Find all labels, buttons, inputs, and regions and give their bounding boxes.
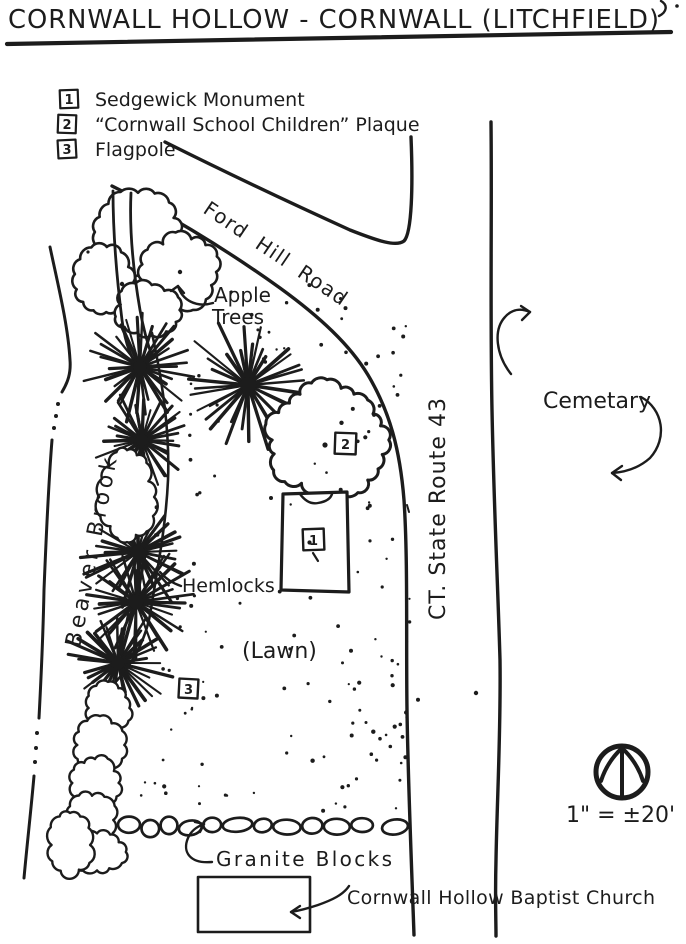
page-title: CORNWALL HOLLOW - CORNWALL (LITCHFIELD) (8, 5, 660, 35)
page-corner-mark (659, 1, 679, 16)
label-granite-blocks: Granite Blocks (216, 847, 392, 871)
label-church: Cornwall Hollow Baptist Church (347, 887, 655, 909)
beaver-brook-stream (24, 247, 70, 878)
label-apple-line1: Apple (214, 283, 271, 307)
label-scale: 1" = ±20' (566, 803, 675, 828)
marker-plaque: 2 (335, 433, 357, 455)
label-route-43: CT. State Route 43 (426, 398, 451, 620)
site-plan-page: CORNWALL HOLLOW - CORNWALL (LITCHFIELD) … (0, 0, 686, 944)
legend-key-1: 1 (64, 93, 73, 108)
label-cemetary: Cemetary (543, 389, 651, 414)
apple-trees-canopy (72, 189, 220, 338)
plaque-tree-canopy (265, 378, 391, 503)
brook-dashes (33, 402, 60, 764)
label-lawn: (Lawn) (242, 639, 317, 664)
legend-key-3: 3 (62, 143, 71, 158)
marker-monument: 1 (303, 529, 325, 551)
marker-flagpole: 3 (178, 679, 198, 699)
marker-plaque-num: 2 (341, 438, 350, 453)
cemetary-arrow-up (498, 306, 530, 374)
church-building-outline (198, 877, 310, 932)
legend: 1 Sedgewick Monument 2 “Cornwall School … (58, 89, 420, 161)
stray-tick-road (407, 505, 409, 512)
label-hemlocks: Hemlocks (182, 575, 275, 597)
plaque-tree-trunk-dot (322, 442, 327, 447)
legend-label-1: Sedgewick Monument (95, 89, 305, 111)
legend-label-2: “Cornwall School Children” Plaque (95, 114, 420, 136)
route-43-east-edge (491, 122, 500, 936)
label-apple-line2: Trees (211, 305, 264, 329)
stray-dot (474, 691, 478, 695)
north-compass (596, 746, 648, 798)
legend-key-2: 2 (62, 118, 71, 133)
marker-flagpole-num: 3 (184, 683, 193, 698)
site-plan-drawing: CORNWALL HOLLOW - CORNWALL (LITCHFIELD) … (0, 0, 686, 944)
granite-block-row (118, 816, 409, 838)
